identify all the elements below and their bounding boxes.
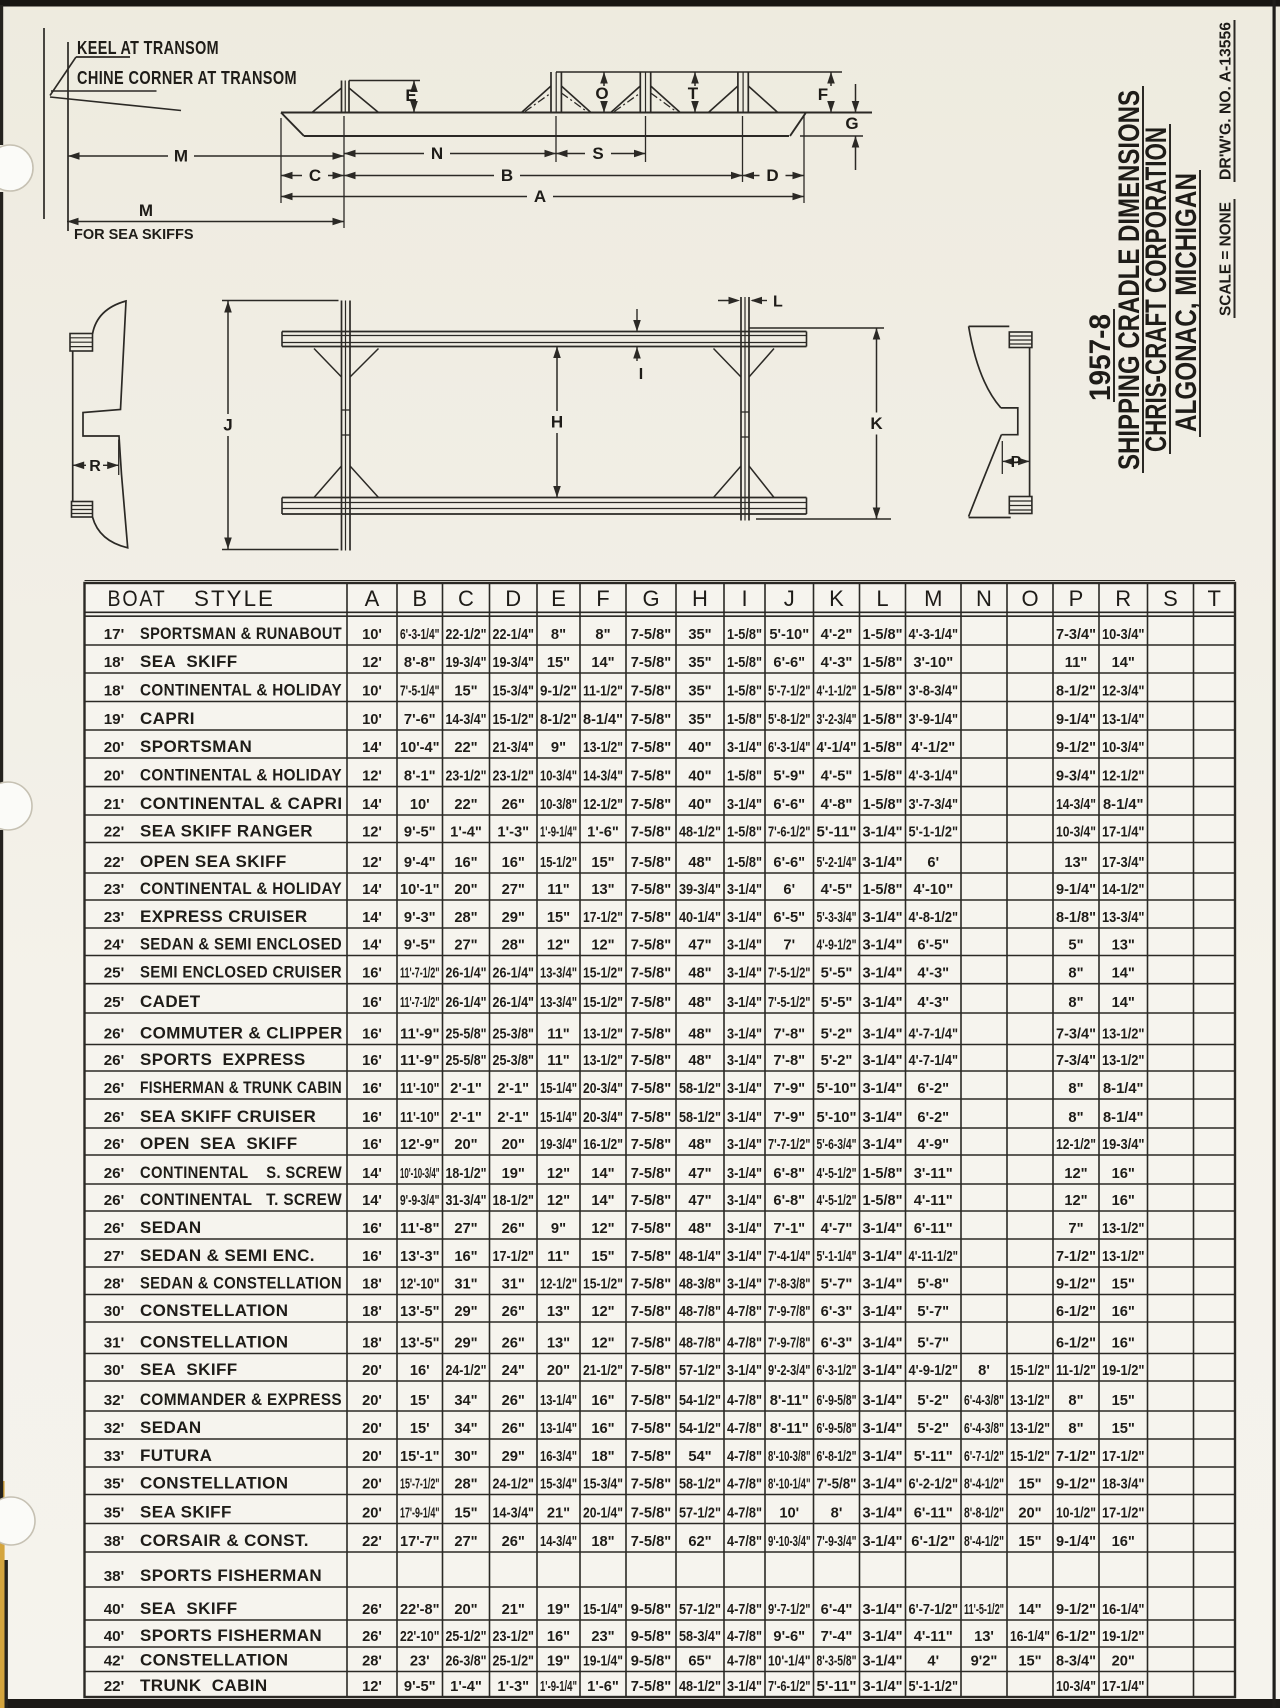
svg-text:8'-1": 8'-1" [404, 768, 436, 784]
svg-text:28": 28" [454, 910, 477, 926]
svg-text:28': 28' [104, 1275, 125, 1292]
svg-text:3-1/4": 3-1/4" [863, 937, 903, 953]
svg-text:4-7/8": 4-7/8" [727, 1629, 762, 1645]
svg-text:6'-3-1/2": 6'-3-1/2" [817, 1363, 857, 1379]
svg-text:16': 16' [362, 1137, 382, 1153]
svg-text:19': 19' [104, 711, 125, 728]
svg-text:13'-5": 13'-5" [400, 1304, 440, 1320]
svg-text:4-7/8": 4-7/8" [727, 1653, 762, 1669]
svg-text:SPORTS FISHERMAN: SPORTS FISHERMAN [140, 1626, 322, 1645]
svg-text:3-1/4": 3-1/4" [727, 1081, 762, 1097]
svg-text:25-1/2": 25-1/2" [493, 1653, 535, 1669]
svg-text:7-5/8": 7-5/8" [631, 966, 671, 982]
svg-text:11'-9": 11'-9" [400, 1053, 440, 1069]
svg-text:F: F [818, 85, 828, 104]
svg-text:39-3/4": 39-3/4" [679, 882, 721, 898]
svg-text:15": 15" [591, 855, 614, 871]
svg-text:6'-1/2": 6'-1/2" [911, 1534, 955, 1550]
svg-text:1-5/8": 1-5/8" [727, 768, 762, 784]
svg-text:O: O [1021, 586, 1038, 611]
svg-text:12": 12" [591, 1335, 614, 1351]
svg-text:22": 22" [454, 797, 477, 813]
svg-text:27": 27" [502, 882, 525, 898]
svg-text:38': 38' [104, 1533, 125, 1550]
svg-text:8": 8" [1068, 1110, 1083, 1126]
svg-text:10': 10' [362, 627, 382, 643]
svg-text:35': 35' [104, 1475, 125, 1492]
svg-text:7-5/8": 7-5/8" [631, 1449, 671, 1465]
svg-text:18-1/2": 18-1/2" [493, 1193, 535, 1209]
svg-text:38': 38' [104, 1568, 125, 1585]
svg-text:11": 11" [547, 1249, 570, 1265]
svg-text:13-1/2": 13-1/2" [1102, 1053, 1145, 1069]
svg-text:17-1/2": 17-1/2" [493, 1249, 535, 1265]
svg-text:5'-2": 5'-2" [917, 1393, 949, 1409]
svg-text:3-1/4": 3-1/4" [863, 1276, 903, 1292]
svg-text:7-5/8": 7-5/8" [631, 740, 671, 756]
svg-text:32': 32' [104, 1420, 125, 1437]
svg-text:18-3/4": 18-3/4" [1102, 1476, 1145, 1492]
svg-text:9-1/2": 9-1/2" [1056, 1476, 1096, 1492]
svg-text:7-5/8": 7-5/8" [631, 768, 671, 784]
svg-text:S: S [1163, 586, 1178, 611]
svg-text:7-5/8": 7-5/8" [631, 1393, 671, 1409]
svg-text:15": 15" [1018, 1653, 1041, 1669]
svg-text:12-1/2": 12-1/2" [540, 1276, 577, 1292]
svg-text:7-5/8": 7-5/8" [631, 1053, 671, 1069]
svg-text:8-1/4": 8-1/4" [1103, 797, 1143, 813]
svg-text:8": 8" [595, 627, 610, 643]
svg-text:4'-7-1/4": 4'-7-1/4" [909, 1026, 959, 1042]
svg-text:48": 48" [688, 855, 711, 871]
svg-text:48-1/2": 48-1/2" [679, 824, 721, 840]
svg-text:4'-1-1/2": 4'-1-1/2" [817, 683, 857, 699]
svg-text:6-1/2": 6-1/2" [1056, 1304, 1096, 1320]
svg-text:4-7/8": 4-7/8" [727, 1335, 762, 1351]
svg-text:3-1/4": 3-1/4" [863, 1053, 903, 1069]
svg-text:57-1/2": 57-1/2" [679, 1363, 721, 1379]
svg-text:23-1/2": 23-1/2" [446, 768, 487, 784]
svg-text:26': 26' [104, 1080, 125, 1097]
svg-text:4-7/8": 4-7/8" [727, 1534, 762, 1550]
svg-text:6'-4-3/8": 6'-4-3/8" [964, 1421, 1004, 1437]
svg-text:6'-3-1/4": 6'-3-1/4" [768, 740, 811, 756]
svg-text:18": 18" [591, 1449, 614, 1465]
svg-text:T: T [688, 84, 699, 103]
svg-text:E: E [551, 586, 566, 611]
svg-text:3-1/4": 3-1/4" [727, 882, 762, 898]
svg-text:10-3/4": 10-3/4" [1102, 740, 1145, 756]
svg-text:14': 14' [362, 740, 382, 756]
svg-text:5'-1-1/2": 5'-1-1/2" [909, 824, 959, 840]
svg-text:FOR SEA SKIFFS: FOR SEA SKIFFS [74, 227, 194, 243]
svg-text:23': 23' [410, 1653, 430, 1669]
svg-text:12": 12" [547, 1193, 570, 1209]
svg-text:25-5/8": 25-5/8" [446, 1053, 487, 1069]
svg-text:10-3/4": 10-3/4" [1056, 1679, 1096, 1695]
svg-text:9-3/4": 9-3/4" [1056, 768, 1096, 784]
svg-text:SPORTS EXPRESS: SPORTS EXPRESS [140, 1050, 306, 1069]
svg-text:1-5/8": 1-5/8" [863, 655, 903, 671]
svg-text:30': 30' [104, 1362, 125, 1379]
svg-text:27": 27" [454, 1221, 477, 1237]
svg-text:26': 26' [362, 1602, 382, 1618]
svg-text:7'-6-1/2": 7'-6-1/2" [768, 824, 811, 840]
svg-text:3'-9-1/4": 3'-9-1/4" [909, 712, 959, 728]
svg-text:7'-8-3/8": 7'-8-3/8" [768, 1276, 811, 1292]
svg-text:9-1/4": 9-1/4" [1056, 882, 1096, 898]
svg-text:26-1/4": 26-1/4" [493, 995, 535, 1011]
svg-text:8-3/4": 8-3/4" [1056, 1653, 1096, 1669]
svg-text:40': 40' [104, 1601, 125, 1618]
svg-text:2'-1": 2'-1" [497, 1081, 529, 1097]
svg-text:3'-7-3/4": 3'-7-3/4" [909, 797, 959, 813]
svg-text:8'-3-5/8": 8'-3-5/8" [817, 1653, 857, 1669]
svg-text:4'-3": 4'-3" [821, 655, 853, 671]
svg-text:R: R [1115, 586, 1131, 611]
svg-text:58-1/2": 58-1/2" [679, 1081, 721, 1097]
svg-text:7'-5-1/4": 7'-5-1/4" [400, 683, 440, 699]
svg-text:5'-10": 5'-10" [769, 627, 809, 643]
svg-text:SPORTSMAN: SPORTSMAN [140, 737, 252, 756]
svg-text:12": 12" [591, 937, 614, 953]
svg-text:5'-1-1/4": 5'-1-1/4" [817, 1249, 857, 1265]
svg-text:8': 8' [831, 1505, 843, 1521]
svg-text:40": 40" [688, 740, 711, 756]
svg-text:11'-9": 11'-9" [400, 1026, 440, 1042]
svg-text:4-7/8": 4-7/8" [727, 1505, 762, 1521]
svg-text:1-5/8": 1-5/8" [863, 683, 903, 699]
svg-text:18': 18' [104, 682, 125, 699]
svg-text:SEDAN: SEDAN [140, 1218, 202, 1237]
svg-text:9'-5": 9'-5" [404, 937, 436, 953]
svg-text:29": 29" [454, 1304, 477, 1320]
svg-text:14": 14" [1018, 1602, 1041, 1618]
svg-text:7': 7' [783, 937, 795, 953]
svg-text:9'-6": 9'-6" [773, 1629, 805, 1645]
svg-text:6'-2": 6'-2" [917, 1110, 949, 1126]
svg-text:4-7/8": 4-7/8" [727, 1304, 762, 1320]
svg-text:9-1/4": 9-1/4" [1056, 1534, 1096, 1550]
svg-text:15": 15" [1112, 1393, 1135, 1409]
svg-text:20": 20" [547, 1363, 570, 1379]
svg-text:8'-4-1/2": 8'-4-1/2" [964, 1534, 1004, 1550]
svg-text:26": 26" [502, 1421, 525, 1437]
svg-text:J: J [223, 416, 232, 435]
svg-text:26': 26' [104, 1109, 125, 1126]
svg-text:26': 26' [104, 1025, 125, 1042]
svg-text:7-5/8": 7-5/8" [631, 712, 671, 728]
svg-text:1-5/8": 1-5/8" [727, 712, 762, 728]
svg-text:25-3/8": 25-3/8" [493, 1026, 535, 1042]
svg-text:17'-9-1/4": 17'-9-1/4" [400, 1505, 440, 1521]
svg-text:22-1/2": 22-1/2" [446, 627, 487, 643]
svg-text:16-1/4": 16-1/4" [1010, 1629, 1050, 1645]
svg-text:3-1/4": 3-1/4" [863, 1363, 903, 1379]
svg-text:7-5/8": 7-5/8" [631, 797, 671, 813]
svg-text:7-5/8": 7-5/8" [631, 995, 671, 1011]
svg-text:CHRIS-CRAFT CORPORATION: CHRIS-CRAFT CORPORATION [1140, 127, 1173, 452]
svg-text:17-1/4": 17-1/4" [1102, 824, 1145, 840]
svg-text:3-1/4": 3-1/4" [863, 1110, 903, 1126]
svg-text:20': 20' [362, 1421, 382, 1437]
svg-text:20": 20" [1018, 1505, 1041, 1521]
svg-text:7-5/8": 7-5/8" [631, 882, 671, 898]
svg-text:D: D [766, 166, 778, 185]
svg-text:15": 15" [454, 683, 477, 699]
svg-text:4-7/8": 4-7/8" [727, 1476, 762, 1492]
svg-text:7-5/8": 7-5/8" [631, 1137, 671, 1153]
svg-text:M: M [174, 147, 188, 166]
svg-text:15": 15" [1018, 1534, 1041, 1550]
svg-text:15-1/4": 15-1/4" [540, 1081, 577, 1097]
svg-text:7'-4": 7'-4" [821, 1629, 853, 1645]
svg-text:22'-8": 22'-8" [400, 1602, 440, 1618]
svg-text:7-5/8": 7-5/8" [631, 655, 671, 671]
svg-text:12': 12' [362, 1679, 382, 1695]
svg-text:8-1/2": 8-1/2" [540, 712, 577, 728]
svg-text:17-1/2": 17-1/2" [1102, 1505, 1145, 1521]
svg-text:8'-11": 8'-11" [770, 1393, 809, 1409]
svg-text:13-1/2": 13-1/2" [1010, 1421, 1050, 1437]
svg-text:58-1/2": 58-1/2" [679, 1110, 721, 1126]
svg-text:CONTINENTAL & HOLIDAY: CONTINENTAL & HOLIDAY [140, 680, 342, 699]
svg-text:D: D [505, 586, 521, 611]
svg-text:40': 40' [104, 1628, 125, 1645]
svg-text:13-1/2": 13-1/2" [583, 1053, 623, 1069]
svg-text:26-3/8": 26-3/8" [446, 1653, 487, 1669]
svg-text:T: T [1208, 586, 1221, 611]
svg-text:CONTINENTAL & HOLIDAY: CONTINENTAL & HOLIDAY [140, 879, 342, 898]
svg-text:3-1/4": 3-1/4" [863, 1221, 903, 1237]
svg-text:31": 31" [502, 1276, 525, 1292]
svg-text:5'-7": 5'-7" [917, 1335, 949, 1351]
svg-text:8'-10-1/4": 8'-10-1/4" [768, 1476, 811, 1492]
svg-text:DR'W'G. NO. A-13556: DR'W'G. NO. A-13556 [1218, 22, 1235, 180]
svg-text:23": 23" [591, 1629, 614, 1645]
svg-text:8": 8" [1068, 995, 1083, 1011]
svg-text:3-1/4": 3-1/4" [727, 1193, 762, 1209]
svg-text:8': 8' [978, 1363, 990, 1379]
svg-text:4'-5": 4'-5" [821, 768, 853, 784]
svg-text:8'-10-3/8": 8'-10-3/8" [768, 1449, 811, 1465]
svg-text:17-3/4": 17-3/4" [1102, 855, 1145, 871]
svg-text:15-1/2": 15-1/2" [1010, 1363, 1050, 1379]
svg-text:2'-1": 2'-1" [497, 1110, 529, 1126]
svg-text:29": 29" [454, 1335, 477, 1351]
svg-text:6'-6": 6'-6" [773, 797, 805, 813]
svg-text:26': 26' [104, 1052, 125, 1069]
svg-text:9'-5": 9'-5" [404, 1679, 436, 1695]
svg-text:16": 16" [1112, 1193, 1135, 1209]
svg-text:35": 35" [688, 655, 711, 671]
svg-text:4'-9": 4'-9" [917, 1137, 949, 1153]
svg-text:48": 48" [688, 966, 711, 982]
svg-text:A: A [365, 586, 380, 611]
svg-text:1-5/8": 1-5/8" [863, 797, 903, 813]
svg-text:8'-8-1/2": 8'-8-1/2" [964, 1505, 1004, 1521]
svg-text:11'-10": 11'-10" [400, 1110, 440, 1126]
svg-text:1'-9-1/4": 1'-9-1/4" [540, 1679, 577, 1695]
svg-text:4'-3-1/4": 4'-3-1/4" [909, 768, 959, 784]
svg-text:9'-4": 9'-4" [404, 855, 436, 871]
svg-text:FUTURA: FUTURA [140, 1446, 212, 1465]
svg-text:4'-11": 4'-11" [914, 1629, 953, 1645]
svg-text:10-1/2": 10-1/2" [1056, 1505, 1096, 1521]
svg-text:13": 13" [547, 1304, 570, 1320]
svg-text:9": 9" [551, 1221, 566, 1237]
svg-text:K: K [870, 414, 883, 433]
svg-text:42': 42' [104, 1652, 125, 1669]
svg-text:20': 20' [104, 767, 125, 784]
svg-text:18': 18' [104, 654, 125, 671]
svg-text:16-1/2": 16-1/2" [583, 1137, 623, 1153]
svg-text:19-3/4": 19-3/4" [540, 1137, 577, 1153]
svg-text:16': 16' [362, 966, 382, 982]
svg-text:15-1/2": 15-1/2" [583, 995, 623, 1011]
svg-text:9-1/2": 9-1/2" [1056, 1602, 1096, 1618]
svg-text:7-5/8": 7-5/8" [631, 683, 671, 699]
svg-text:5'-7": 5'-7" [917, 1304, 949, 1320]
svg-text:17'-7": 17'-7" [400, 1534, 440, 1550]
svg-text:48": 48" [688, 995, 711, 1011]
svg-text:7-5/8": 7-5/8" [631, 1193, 671, 1209]
svg-text:58-1/2": 58-1/2" [679, 1476, 721, 1492]
svg-text:48": 48" [688, 1053, 711, 1069]
svg-text:13": 13" [547, 1335, 570, 1351]
svg-text:9'-7-1/2": 9'-7-1/2" [768, 1602, 811, 1618]
svg-text:8": 8" [551, 627, 566, 643]
svg-text:7'-7-1/2": 7'-7-1/2" [768, 1137, 811, 1153]
svg-text:5'-2": 5'-2" [917, 1421, 949, 1437]
svg-text:13-3/4": 13-3/4" [540, 995, 577, 1011]
svg-text:CHINE CORNER AT TRANSOM: CHINE CORNER AT TRANSOM [77, 68, 297, 88]
svg-text:H: H [551, 413, 563, 432]
svg-text:COMMANDER & EXPRESS: COMMANDER & EXPRESS [140, 1390, 342, 1409]
svg-text:1'-3": 1'-3" [497, 824, 529, 840]
svg-text:27': 27' [104, 1248, 125, 1265]
svg-text:5'-7-1/2": 5'-7-1/2" [768, 683, 811, 699]
svg-text:2'-1": 2'-1" [450, 1081, 482, 1097]
svg-text:3-1/4": 3-1/4" [863, 1249, 903, 1265]
svg-text:C: C [458, 586, 474, 611]
svg-text:5'-9": 5'-9" [773, 768, 805, 784]
svg-text:FISHERMAN & TRUNK CABIN: FISHERMAN & TRUNK CABIN [140, 1078, 342, 1097]
svg-text:6-1/2": 6-1/2" [1056, 1335, 1096, 1351]
svg-text:9-1/2": 9-1/2" [1056, 1276, 1096, 1292]
svg-text:15-1/2": 15-1/2" [540, 855, 577, 871]
svg-text:7-5/8": 7-5/8" [631, 855, 671, 871]
svg-text:3-1/4": 3-1/4" [727, 1363, 762, 1379]
svg-text:48-1/4": 48-1/4" [679, 1249, 721, 1265]
svg-text:10': 10' [362, 683, 382, 699]
svg-text:40": 40" [688, 797, 711, 813]
svg-text:16-1/4": 16-1/4" [1102, 1602, 1145, 1618]
svg-text:4'-1/2": 4'-1/2" [911, 740, 955, 756]
svg-text:8": 8" [1068, 966, 1083, 982]
svg-text:20': 20' [362, 1363, 382, 1379]
svg-text:7-5/8": 7-5/8" [631, 1249, 671, 1265]
svg-text:10'-4": 10'-4" [400, 740, 440, 756]
svg-text:26-1/4": 26-1/4" [493, 966, 535, 982]
svg-text:1-5/8": 1-5/8" [727, 627, 762, 643]
svg-text:6'-8": 6'-8" [773, 1166, 805, 1182]
svg-text:CONTINENTAL S. SCREW: CONTINENTAL S. SCREW [140, 1163, 342, 1182]
svg-text:40": 40" [688, 768, 711, 784]
svg-text:3'-11": 3'-11" [914, 1166, 953, 1182]
svg-text:20-3/4": 20-3/4" [583, 1081, 623, 1097]
svg-text:16": 16" [454, 1249, 477, 1265]
svg-text:SEDAN & SEMI ENCLOSED: SEDAN & SEMI ENCLOSED [140, 934, 342, 953]
svg-text:10-3/4": 10-3/4" [1102, 627, 1145, 643]
svg-text:9'-3": 9'-3" [404, 910, 436, 926]
svg-text:M: M [139, 201, 153, 220]
svg-text:5'-7": 5'-7" [821, 1276, 853, 1292]
svg-text:CONSTELLATION: CONSTELLATION [140, 1473, 288, 1492]
svg-text:27": 27" [454, 937, 477, 953]
svg-text:14": 14" [591, 1193, 614, 1209]
svg-text:31": 31" [454, 1276, 477, 1292]
svg-text:7-5/8": 7-5/8" [631, 1276, 671, 1292]
svg-text:9-1/2": 9-1/2" [540, 683, 577, 699]
svg-text:10': 10' [362, 712, 382, 728]
svg-text:31': 31' [104, 1334, 125, 1351]
svg-text:6-1/2": 6-1/2" [1056, 1629, 1096, 1645]
svg-text:3-1/4": 3-1/4" [727, 1276, 762, 1292]
svg-text:11'-5-1/2": 11'-5-1/2" [964, 1602, 1004, 1618]
svg-text:9": 9" [551, 740, 566, 756]
svg-text:18': 18' [362, 1276, 382, 1292]
svg-text:15'-1": 15'-1" [400, 1449, 440, 1465]
svg-text:4'-3-1/4": 4'-3-1/4" [909, 627, 959, 643]
svg-text:15'-7-1/2": 15'-7-1/2" [400, 1476, 440, 1492]
svg-text:7-5/8": 7-5/8" [631, 1110, 671, 1126]
svg-text:16': 16' [362, 1081, 382, 1097]
svg-text:23-1/2": 23-1/2" [493, 1629, 535, 1645]
svg-text:6'-9-5/8": 6'-9-5/8" [817, 1421, 857, 1437]
svg-text:27": 27" [454, 1534, 477, 1550]
svg-text:15-1/2": 15-1/2" [1010, 1449, 1050, 1465]
svg-text:10'-10-3/4": 10'-10-3/4" [400, 1166, 440, 1182]
svg-text:7-5/8": 7-5/8" [631, 627, 671, 643]
svg-text:19": 19" [502, 1166, 525, 1182]
svg-text:15': 15' [410, 1421, 430, 1437]
svg-text:20': 20' [362, 1449, 382, 1465]
svg-text:25': 25' [104, 994, 125, 1011]
svg-text:3-1/4": 3-1/4" [863, 1534, 903, 1550]
svg-text:3-1/4": 3-1/4" [727, 910, 762, 926]
svg-text:3-1/4": 3-1/4" [863, 1026, 903, 1042]
svg-text:1'-4": 1'-4" [450, 824, 482, 840]
svg-text:10'-1": 10'-1" [400, 882, 440, 898]
svg-text:14": 14" [591, 1166, 614, 1182]
svg-text:7": 7" [1068, 1221, 1083, 1237]
svg-text:1-5/8": 1-5/8" [727, 855, 762, 871]
svg-text:25-1/2": 25-1/2" [446, 1629, 487, 1645]
svg-text:12": 12" [1064, 1193, 1087, 1209]
svg-text:5'-10": 5'-10" [817, 1110, 857, 1126]
svg-text:7'-8": 7'-8" [773, 1026, 805, 1042]
svg-text:H: H [692, 586, 708, 611]
svg-text:22": 22" [454, 740, 477, 756]
svg-text:28": 28" [454, 1476, 477, 1492]
svg-text:L: L [876, 586, 888, 611]
svg-text:3-1/4": 3-1/4" [863, 1421, 903, 1437]
svg-text:C: C [309, 166, 321, 185]
svg-text:26': 26' [104, 1165, 125, 1182]
svg-text:17': 17' [104, 626, 125, 643]
svg-text:47": 47" [688, 1193, 711, 1209]
